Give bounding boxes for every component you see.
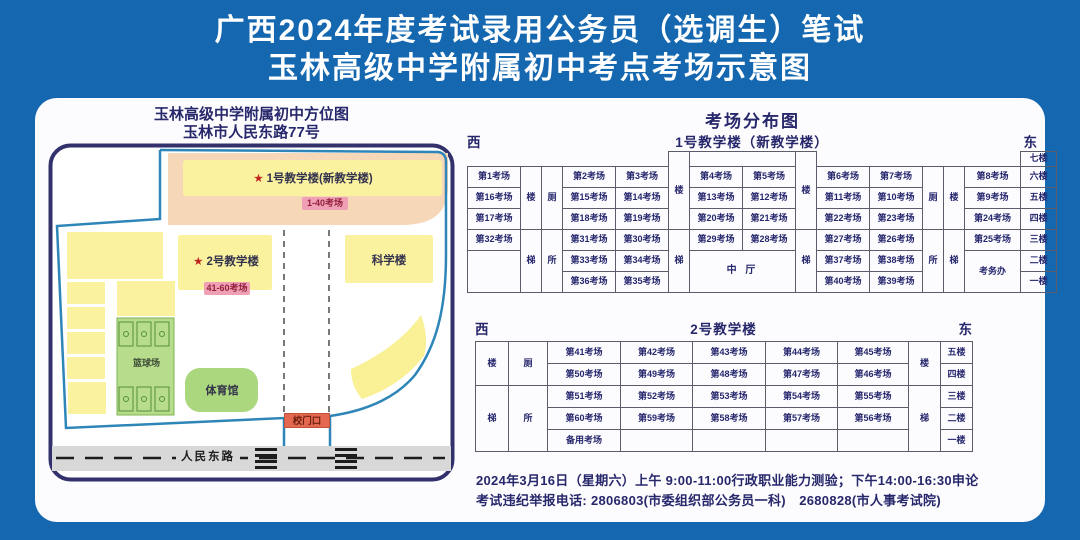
room-cell: 第22考场: [817, 209, 870, 230]
left-building-small: [68, 382, 106, 414]
star-icon: ★: [253, 173, 263, 185]
room-cell: 第39考场: [870, 272, 923, 293]
room-cell: 第1考场: [468, 167, 521, 188]
empty-cell: [693, 430, 766, 452]
seventh-floor-empty-cell: [690, 152, 796, 167]
east-label: 东: [958, 318, 972, 338]
banner-line-2: 玉林高级中学附属初中考点考场示意图: [0, 50, 1080, 88]
room-cell: 第14考场: [616, 188, 669, 209]
room-cell: 第20考场: [690, 209, 743, 230]
campus-map: [48, 143, 455, 482]
left-building-small: [67, 307, 105, 329]
room-cell: 第16考场: [468, 188, 521, 209]
room-cell: 第48考场: [693, 364, 766, 386]
banner: 广西2024年度考试录用公务员（选调生）笔试 玉林高级中学附属初中考点考场示意图: [0, 12, 1080, 88]
room-cell: 第56考场: [838, 408, 909, 430]
room-cell: 第43考场: [693, 342, 766, 364]
room-cell: 第13考场: [690, 188, 743, 209]
central-hall-cell: 中 厅: [690, 251, 796, 293]
west-label: 西: [467, 131, 481, 151]
room-cell: 第15考场: [563, 188, 616, 209]
schedule-text: 2024年3月16日（星期六）上午 9:00-11:00行政职业能力测验；下午1…: [476, 470, 1042, 489]
room-cell: 第21考场: [743, 209, 796, 230]
room-cell: 第53考场: [693, 386, 766, 408]
room-cell: 第4考场: [690, 167, 743, 188]
empty-cell: [838, 430, 909, 452]
room-cell: 第23考场: [870, 209, 923, 230]
room-cell: 第12考场: [743, 188, 796, 209]
banner-line-1: 广西2024年度考试录用公务员（选调生）笔试: [0, 12, 1080, 50]
school-gate-label: 校门口: [284, 413, 330, 428]
toilet-cell: 厕: [542, 167, 563, 230]
room-cell: 第58考场: [693, 408, 766, 430]
room-cell: 第34考场: [616, 251, 669, 272]
room-cell: 第27考场: [817, 230, 870, 251]
stair-cell: 楼: [521, 167, 542, 230]
room-cell: 第6考场: [817, 167, 870, 188]
stair-cell: 楼: [944, 167, 965, 230]
room-cell: 第46考场: [838, 364, 909, 386]
stair-cell: 梯: [669, 230, 690, 293]
building1-table: 楼 楼 七楼 第1考场 楼 厕 第2考场 第3考场 第4考场 第5考场 第6考场…: [467, 151, 1057, 293]
building2-table-header: 西 2号教学楼 东: [475, 318, 972, 338]
star-icon: ★: [193, 256, 203, 268]
building2-range-label: 41-60考场: [204, 282, 250, 295]
room-cell: 第10考场: [870, 188, 923, 209]
toilet-cell: 厕: [509, 342, 548, 386]
spacer-cell: [817, 152, 1021, 167]
empty-cell: [621, 430, 693, 452]
basketball-label: 篮球场: [118, 356, 175, 369]
room-cell: 第29考场: [690, 230, 743, 251]
stair-cell: 梯: [944, 230, 965, 293]
left-building-medium: [117, 281, 175, 316]
road-name-label: 人民东路: [176, 450, 240, 465]
room-cell: 第2考场: [563, 167, 616, 188]
building2-label: ★2号教学楼: [180, 253, 272, 269]
floor-cell: 四楼: [1021, 209, 1057, 230]
room-cell: 第54考场: [766, 386, 838, 408]
room-cell: 第47考场: [766, 364, 838, 386]
stair-cell: 楼: [669, 152, 690, 230]
room-cell: 第38考场: [870, 251, 923, 272]
room-cell: 第51考场: [548, 386, 621, 408]
floor-cell: 六楼: [1021, 167, 1057, 188]
room-cell: 第11考场: [817, 188, 870, 209]
room-cell: 第57考场: [766, 408, 838, 430]
room-cell: 第7考场: [870, 167, 923, 188]
building2-table-title: 2号教学楼: [690, 318, 757, 338]
floor-cell: 四楼: [941, 364, 973, 386]
stair-cell: 梯: [476, 386, 509, 452]
west-label: 西: [475, 318, 489, 338]
room-cell: 第35考场: [616, 272, 669, 293]
empty-cell: [468, 251, 521, 293]
room-cell: 第24考场: [965, 209, 1021, 230]
room-cell: 第44考场: [766, 342, 838, 364]
empty-cell: [766, 430, 838, 452]
floor-cell: 三楼: [1021, 230, 1057, 251]
room-cell: 第55考场: [838, 386, 909, 408]
room-cell: 第41考场: [548, 342, 621, 364]
room-cell: 第37考场: [817, 251, 870, 272]
floor-cell: 五楼: [941, 342, 973, 364]
room-cell: 第32考场: [468, 230, 521, 251]
poster: { "banner": { "line1": "广西2024年度考试录用公务员（…: [0, 0, 1080, 540]
room-cell: 第25考场: [965, 230, 1021, 251]
left-building-large: [67, 232, 163, 279]
room-cell: 第3考场: [616, 167, 669, 188]
gym-label: 体育馆: [186, 382, 258, 398]
distribution-title: 考场分布图: [465, 107, 1040, 132]
map-title-line2: 玉林市人民东路77号: [48, 121, 455, 142]
floor-cell: 三楼: [941, 386, 973, 408]
stair-cell: 楼: [909, 342, 941, 386]
left-building-small: [67, 357, 105, 379]
floor-cell: 五楼: [1021, 188, 1057, 209]
room-cell: 第31考场: [563, 230, 616, 251]
floor-cell: 一楼: [1021, 272, 1057, 293]
toilet-cell: 所: [923, 230, 944, 293]
building2-table: 楼 厕 第41考场 第42考场 第43考场 第44考场 第45考场 楼 五楼 第…: [475, 341, 973, 452]
room-cell: 第36考场: [563, 272, 616, 293]
room-cell: 第42考场: [621, 342, 693, 364]
stair-cell: 梯: [796, 230, 817, 293]
stair-cell: 楼: [796, 152, 817, 230]
building1-range-label: 1-40考场: [302, 197, 348, 210]
room-cell: 第52考场: [621, 386, 693, 408]
room-cell: 第60考场: [548, 408, 621, 430]
building1-table-header: 西 1号教学楼（新教学楼） 东: [467, 131, 1037, 151]
toilet-cell: 所: [509, 386, 548, 452]
stair-cell: 楼: [476, 342, 509, 386]
exam-office-cell: 考务办: [965, 251, 1021, 293]
floor-cell: 七楼: [1021, 152, 1057, 167]
stair-cell: 梯: [909, 386, 941, 452]
left-building-small: [67, 332, 105, 354]
spacer-cell: [468, 152, 669, 167]
floor-cell: 二楼: [1021, 251, 1057, 272]
room-cell: 第40考场: [817, 272, 870, 293]
room-cell: 第50考场: [548, 364, 621, 386]
room-cell: 第49考场: [621, 364, 693, 386]
hotline-text: 考试违纪举报电话: 2806803(市委组织部公务员一科) 2680828(市人…: [476, 490, 1042, 509]
room-cell: 第30考场: [616, 230, 669, 251]
toilet-cell: 厕: [923, 167, 944, 230]
room-cell: 第59考场: [621, 408, 693, 430]
left-building-small: [67, 282, 105, 304]
room-cell: 第9考场: [965, 188, 1021, 209]
toilet-cell: 所: [542, 230, 563, 293]
room-cell: 第33考场: [563, 251, 616, 272]
room-cell: 第45考场: [838, 342, 909, 364]
stair-cell: 梯: [521, 230, 542, 293]
room-cell: 第19考场: [616, 209, 669, 230]
room-cell: 第8考场: [965, 167, 1021, 188]
room-cell: 第5考场: [743, 167, 796, 188]
room-cell: 第26考场: [870, 230, 923, 251]
east-label: 东: [1023, 131, 1037, 151]
science-building-label: 科学楼: [345, 252, 433, 268]
floor-cell: 一楼: [941, 430, 973, 452]
room-cell: 第18考场: [563, 209, 616, 230]
spare-room-cell: 备用考场: [548, 430, 621, 452]
floor-cell: 二楼: [941, 408, 973, 430]
building1-label: ★1号教学楼(新教学楼): [185, 170, 441, 186]
room-cell: 第17考场: [468, 209, 521, 230]
room-cell: 第28考场: [743, 230, 796, 251]
building1-table-title: 1号教学楼（新教学楼）: [675, 131, 829, 151]
